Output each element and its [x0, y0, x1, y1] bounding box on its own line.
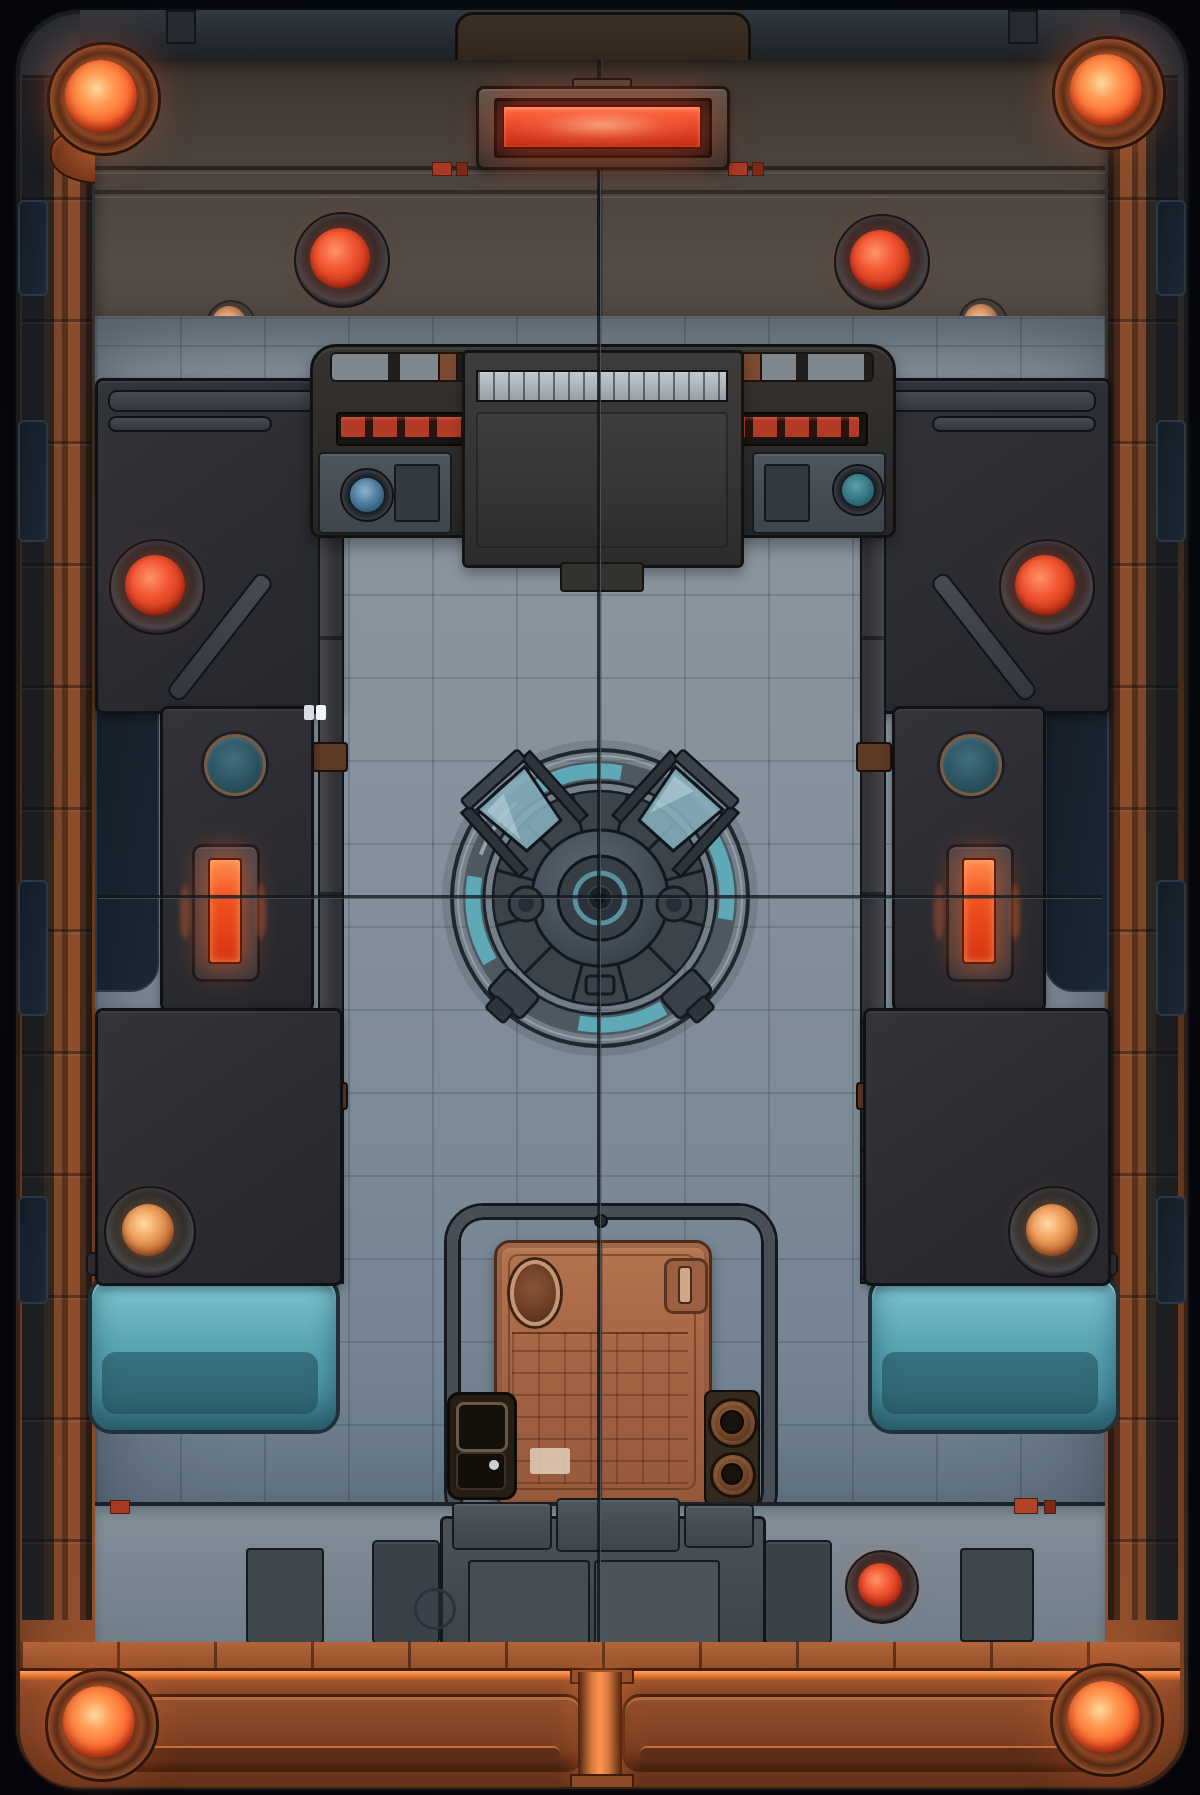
door-side-console-dot: [489, 1460, 499, 1470]
rail-window-slot: [1156, 200, 1186, 296]
red-dome-glass: [310, 228, 370, 288]
pipe-connector: [312, 742, 348, 772]
energy-bar-right: [962, 858, 996, 964]
door-hinge-left: [510, 1260, 560, 1326]
seam-indicator-red: [752, 162, 764, 176]
energy-bar-left: [208, 858, 242, 964]
girder-strut-flange-bottom: [570, 1774, 634, 1787]
amber-dome-glass: [1026, 1204, 1078, 1256]
console-under-box: [560, 562, 644, 592]
red-dome-glass: [850, 230, 910, 290]
machine-box-panel: [764, 464, 810, 522]
girder-strut: [578, 1672, 622, 1787]
frame-rail-left: [22, 75, 92, 1620]
right-wall-bar: [887, 390, 1096, 412]
console-strip-tick: [742, 352, 762, 382]
corner-lamp-top-right: [1070, 54, 1142, 126]
top-rail-tab: [166, 10, 196, 44]
seam-indicator-red: [432, 162, 452, 176]
right-wall-bar: [932, 416, 1096, 432]
girder-lowbar-right: [640, 1746, 1110, 1762]
white-marker: [316, 705, 326, 720]
energy-flare: [1010, 884, 1020, 940]
red-dome-glass: [1015, 555, 1075, 615]
door-hinge-slot: [678, 1266, 692, 1304]
door-button-top-core: [720, 1410, 744, 1434]
corner-lamp-bottom-right: [1068, 1681, 1140, 1753]
dial-teal: [840, 472, 876, 508]
door-wear-patch: [530, 1448, 570, 1474]
scifi-battlemap: [0, 0, 1200, 1795]
corner-lamp-top-left: [65, 60, 137, 132]
dial-blue: [348, 476, 386, 514]
girder-band: [20, 1642, 1180, 1787]
seam-indicator-red: [728, 162, 748, 176]
bottom-panel-right: [960, 1548, 1034, 1642]
crosshair-vertical: [597, 84, 601, 1642]
girder-lowbar-left: [90, 1746, 560, 1762]
console-lower-panel: [476, 412, 728, 548]
top-light-bar-glass: [502, 105, 702, 149]
machine-cluster-panel: [468, 1560, 590, 1646]
seam-indicator-red: [1044, 1500, 1056, 1514]
seam-indicator-red: [456, 162, 468, 176]
teal-recess-left-shade: [102, 1352, 318, 1414]
pipe-connector: [856, 742, 892, 772]
red-dome-glass: [858, 1563, 902, 1607]
rail-window-slot: [1156, 420, 1186, 542]
energy-flare: [256, 884, 266, 940]
console-gauge-strip: [476, 370, 728, 402]
top-rail-tab: [1008, 10, 1038, 44]
floor-ring-detail: [414, 1588, 456, 1630]
console-strip-tick: [438, 352, 458, 382]
girder-lip: [20, 1642, 1180, 1671]
machine-wing-right: [764, 1540, 832, 1644]
red-dome-glass: [125, 555, 185, 615]
door-side-console-screen: [456, 1402, 508, 1452]
machine-cluster-box: [452, 1502, 552, 1550]
amber-dome-glass: [122, 1204, 174, 1256]
crosshair-horizontal: [98, 895, 1102, 899]
left-wall-bar: [108, 390, 317, 412]
door-side-console-tray: [456, 1452, 506, 1490]
seam-indicator-red: [1014, 1498, 1038, 1514]
porthole-right: [940, 734, 1002, 796]
rail-window-slot: [18, 420, 48, 542]
corner-lamp-bottom-left: [63, 1686, 135, 1758]
rail-window-slot: [1156, 1196, 1186, 1304]
bottom-panel-left: [246, 1548, 324, 1644]
seam-indicator-red: [110, 1500, 130, 1514]
energy-flare: [180, 884, 190, 940]
machine-cluster-box: [684, 1504, 754, 1548]
teal-recess-right-shade: [882, 1352, 1098, 1414]
rail-window-slot: [1156, 880, 1186, 1016]
machine-box-panel: [394, 464, 440, 522]
machine-cluster-box: [556, 1498, 680, 1552]
energy-flare: [934, 884, 944, 940]
rail-window-slot: [18, 200, 48, 296]
machine-cluster-panel: [594, 1560, 720, 1646]
rail-window-slot: [18, 880, 48, 1016]
porthole-left: [204, 734, 266, 796]
white-marker: [304, 705, 314, 720]
left-wall-bar: [108, 416, 272, 432]
rail-window-slot: [18, 1196, 48, 1304]
door-button-bottom-core: [721, 1463, 743, 1485]
